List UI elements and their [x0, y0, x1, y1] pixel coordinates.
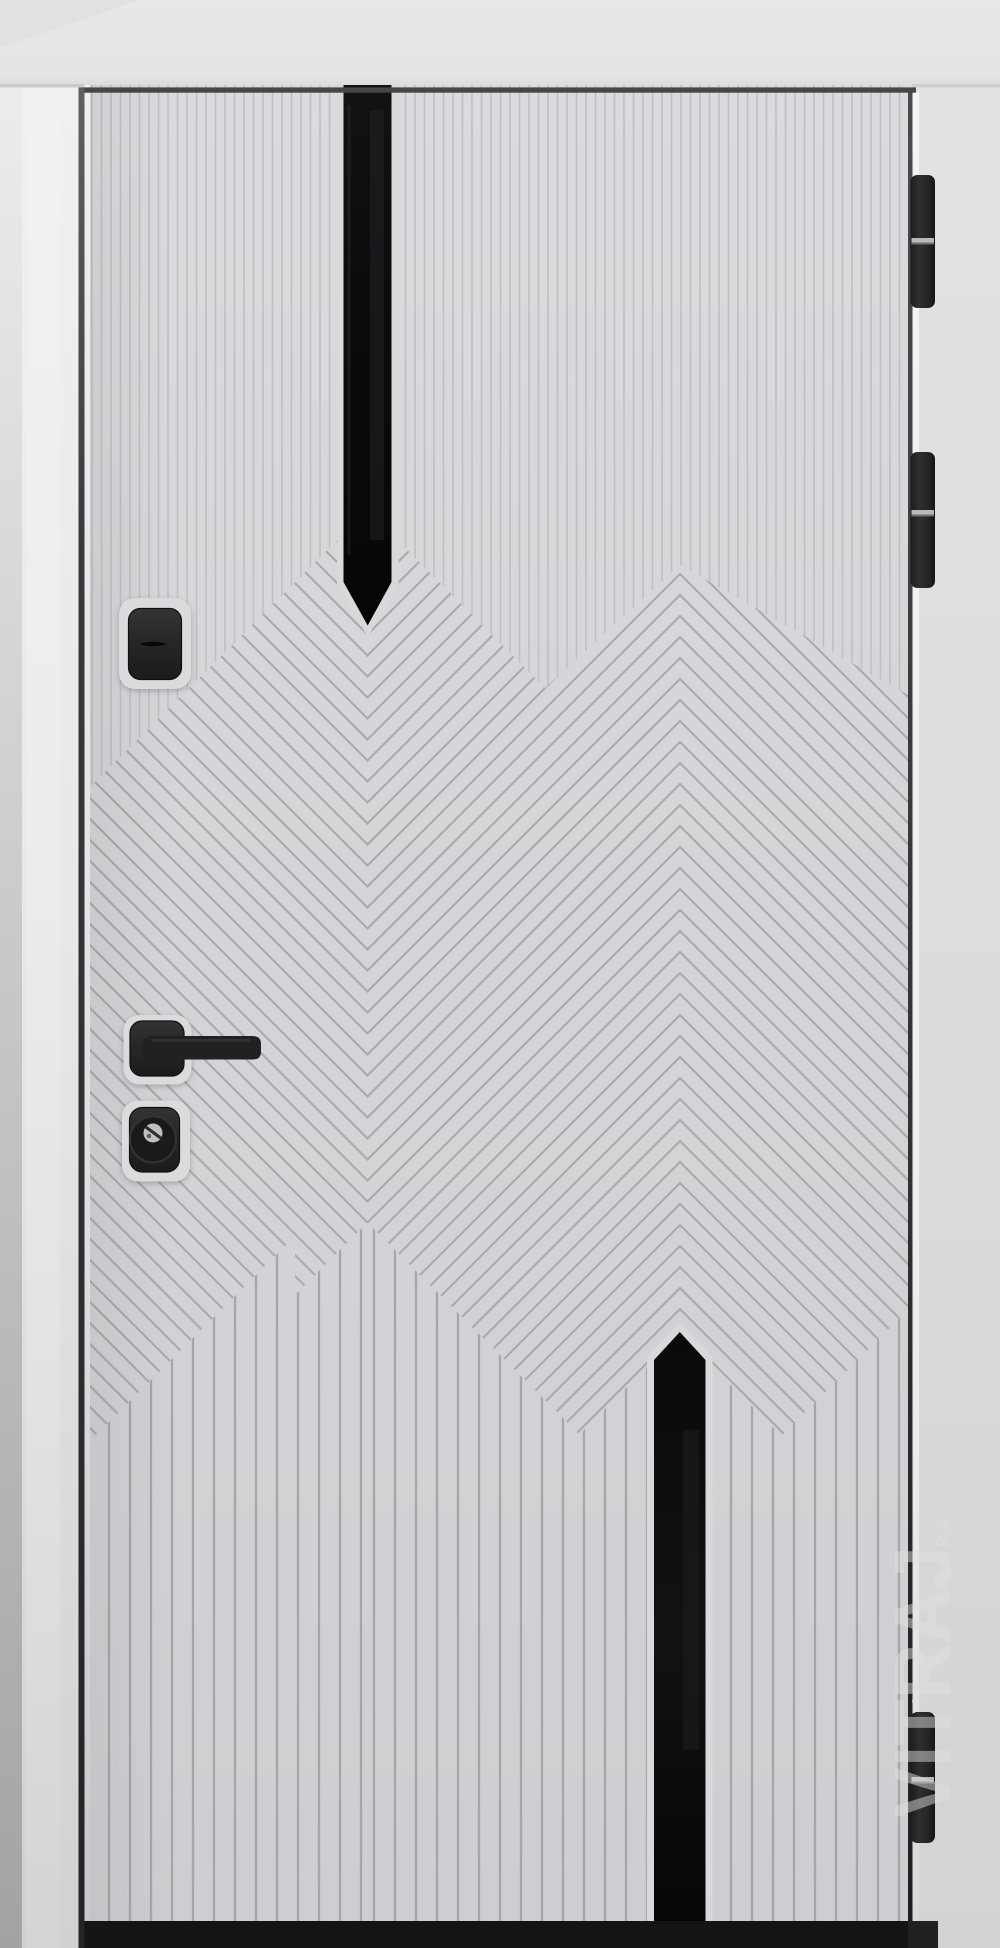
svg-text:VITRAJ: VITRAJ [878, 1546, 967, 1818]
svg-text:®: ® [909, 1696, 924, 1706]
svg-text:DOORS: DOORS [933, 1516, 952, 1598]
